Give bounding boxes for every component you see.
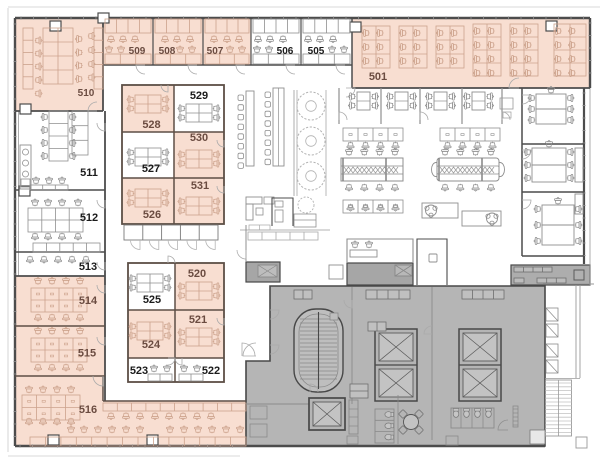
svg-text:509: 509 — [129, 46, 146, 57]
svg-text:531: 531 — [191, 180, 209, 192]
svg-text:510: 510 — [78, 88, 95, 99]
svg-text:527: 527 — [142, 163, 160, 175]
svg-text:528: 528 — [142, 119, 160, 131]
svg-text:524: 524 — [142, 339, 161, 351]
svg-text:516: 516 — [79, 404, 97, 416]
svg-text:520: 520 — [188, 268, 206, 280]
svg-text:506: 506 — [277, 46, 294, 57]
svg-text:526: 526 — [143, 209, 161, 221]
svg-text:515: 515 — [78, 348, 96, 360]
svg-text:501: 501 — [369, 71, 387, 83]
svg-text:521: 521 — [189, 314, 207, 326]
svg-text:512: 512 — [80, 212, 98, 224]
svg-text:523: 523 — [130, 365, 148, 377]
svg-text:525: 525 — [143, 294, 161, 306]
svg-text:514: 514 — [79, 295, 98, 307]
svg-text:511: 511 — [80, 167, 98, 179]
svg-text:507: 507 — [207, 46, 224, 57]
svg-text:522: 522 — [202, 365, 220, 377]
svg-text:529: 529 — [190, 90, 208, 102]
svg-text:530: 530 — [190, 132, 208, 144]
svg-text:508: 508 — [159, 46, 176, 57]
svg-text:505: 505 — [308, 46, 325, 57]
svg-text:513: 513 — [79, 261, 97, 273]
